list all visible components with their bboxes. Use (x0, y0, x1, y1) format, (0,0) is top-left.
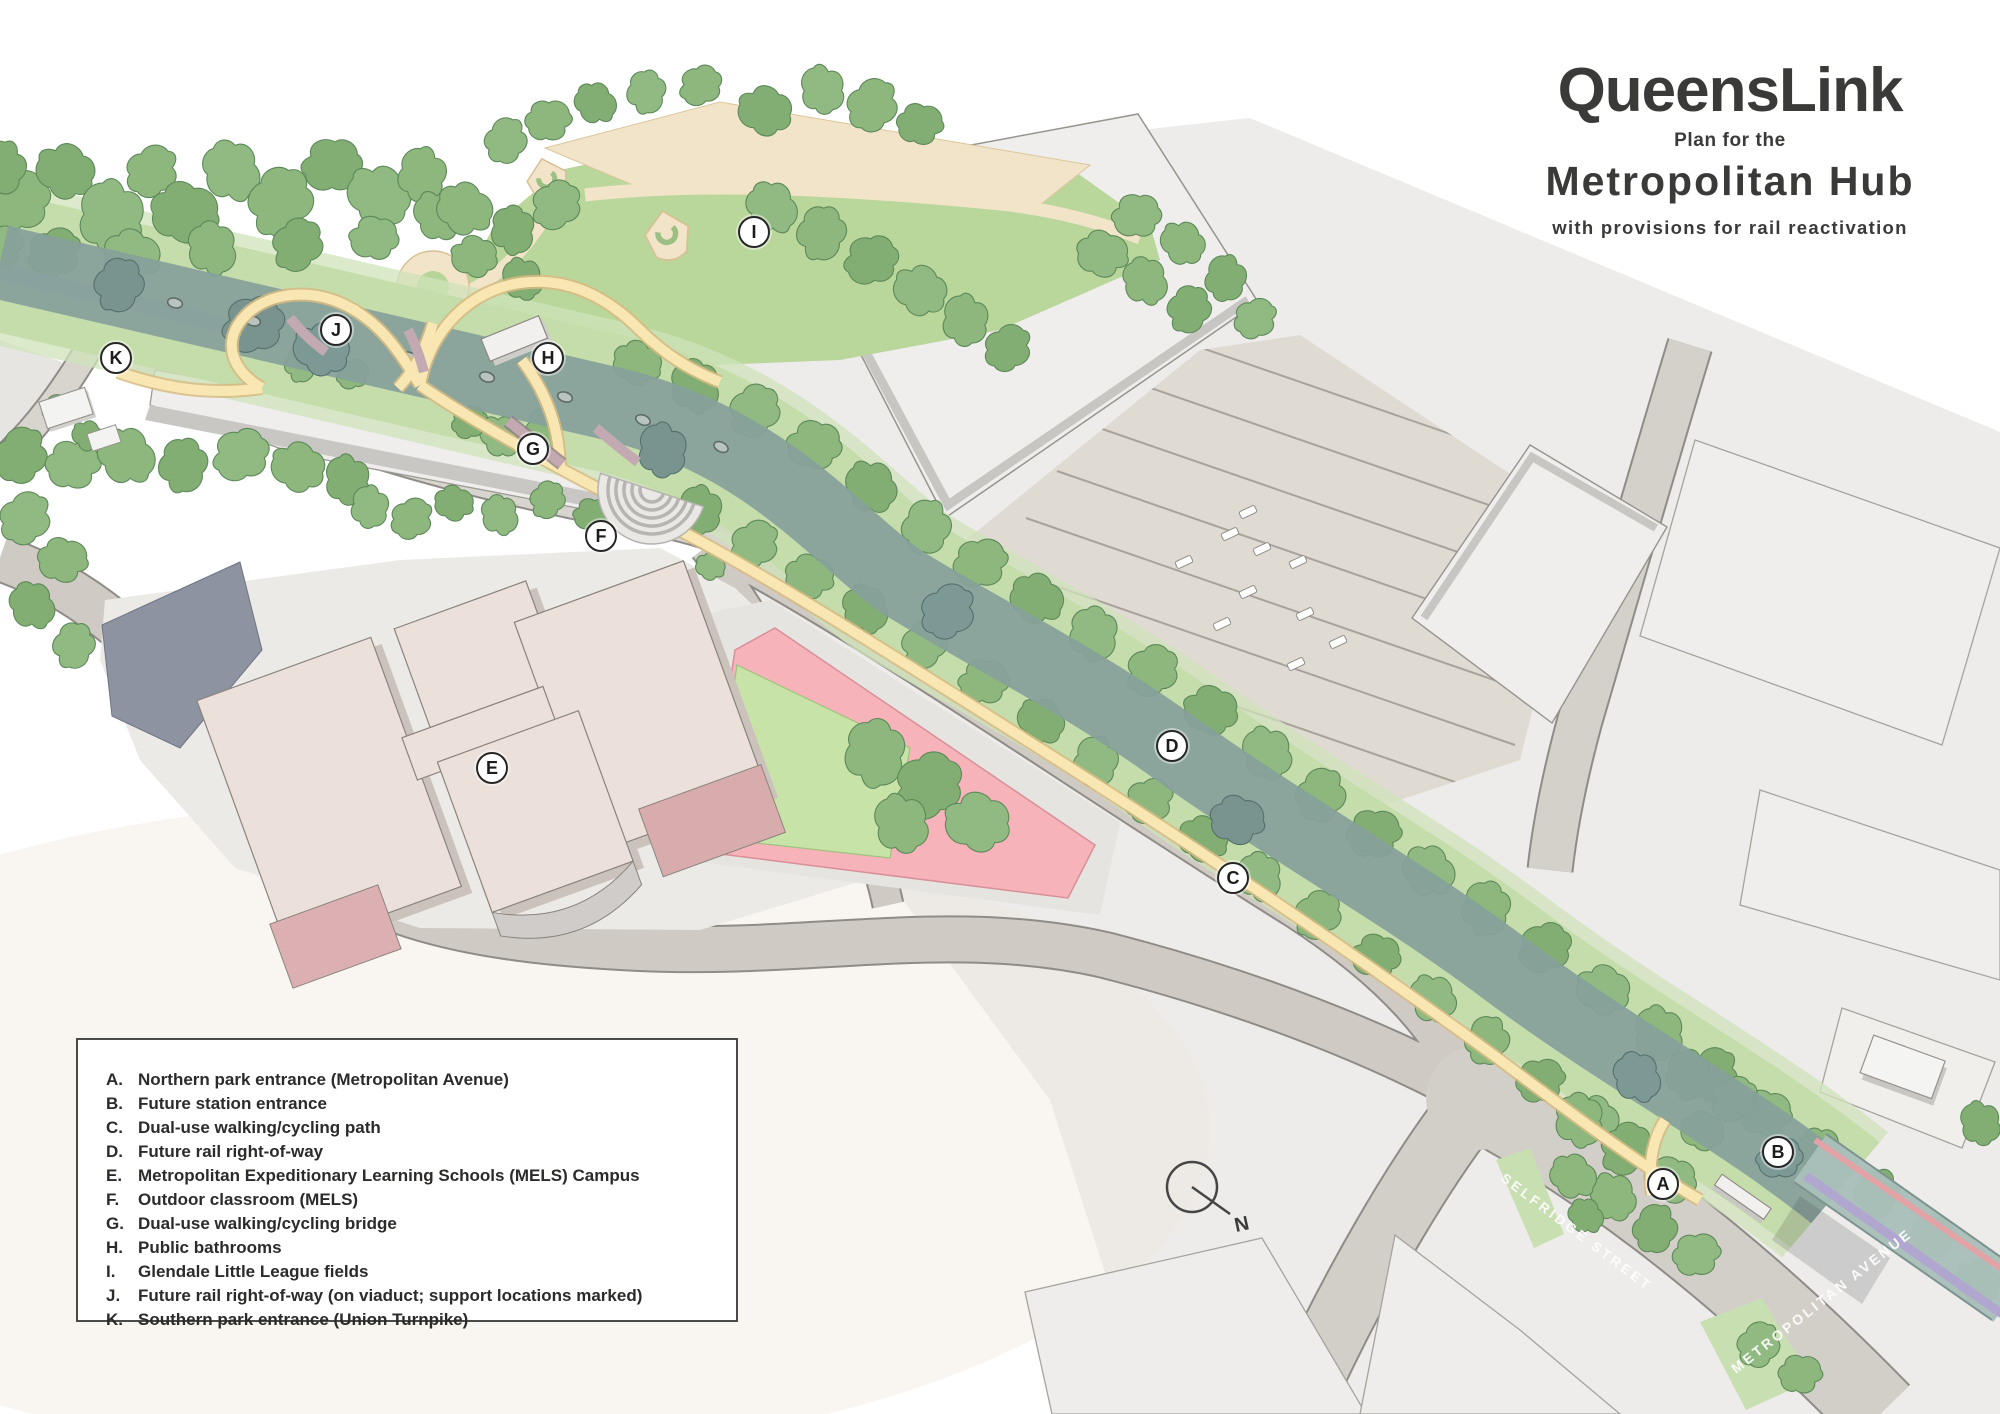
map-marker-i: I (738, 216, 770, 248)
map-marker-h: H (532, 342, 564, 374)
plan-subtitle: Plan for the (1470, 130, 1990, 152)
legend-item-j: J.Future rail right-of-way (on viaduct; … (106, 1286, 718, 1310)
legend-item-i: I.Glendale Little League fields (106, 1262, 718, 1286)
legend-item-k: K.Southern park entrance (Union Turnpike… (106, 1310, 718, 1334)
title-block: QueensLink Plan for the Metropolitan Hub… (1470, 60, 1990, 239)
site-plan-poster: { "title": { "brand": "QueensLink", "sub… (0, 0, 2000, 1414)
plan-tagline: with provisions for rail reactivation (1470, 217, 1990, 239)
plan-name: Metropolitan Hub (1470, 158, 1990, 205)
legend-item-g: G.Dual-use walking/cycling bridge (106, 1214, 718, 1238)
brand-logo: QueensLink (1470, 60, 1990, 122)
map-marker-d: D (1156, 730, 1188, 762)
map-marker-g: G (517, 433, 549, 465)
legend-item-d: D.Future rail right-of-way (106, 1142, 718, 1166)
map-marker-f: F (585, 520, 617, 552)
map-marker-e: E (476, 752, 508, 784)
legend-item-a: A.Northern park entrance (Metropolitan A… (106, 1070, 718, 1094)
legend-box: A.Northern park entrance (Metropolitan A… (76, 1038, 738, 1322)
legend-item-f: F.Outdoor classroom (MELS) (106, 1190, 718, 1214)
map-marker-k: K (100, 342, 132, 374)
legend-item-e: E.Metropolitan Expeditionary Learning Sc… (106, 1166, 718, 1190)
legend-item-c: C.Dual-use walking/cycling path (106, 1118, 718, 1142)
legend-item-b: B.Future station entrance (106, 1094, 718, 1118)
map-marker-c: C (1217, 862, 1249, 894)
map-marker-a: A (1647, 1168, 1679, 1200)
legend-item-h: H.Public bathrooms (106, 1238, 718, 1262)
map-marker-j: J (320, 314, 352, 346)
map-marker-b: B (1762, 1136, 1794, 1168)
